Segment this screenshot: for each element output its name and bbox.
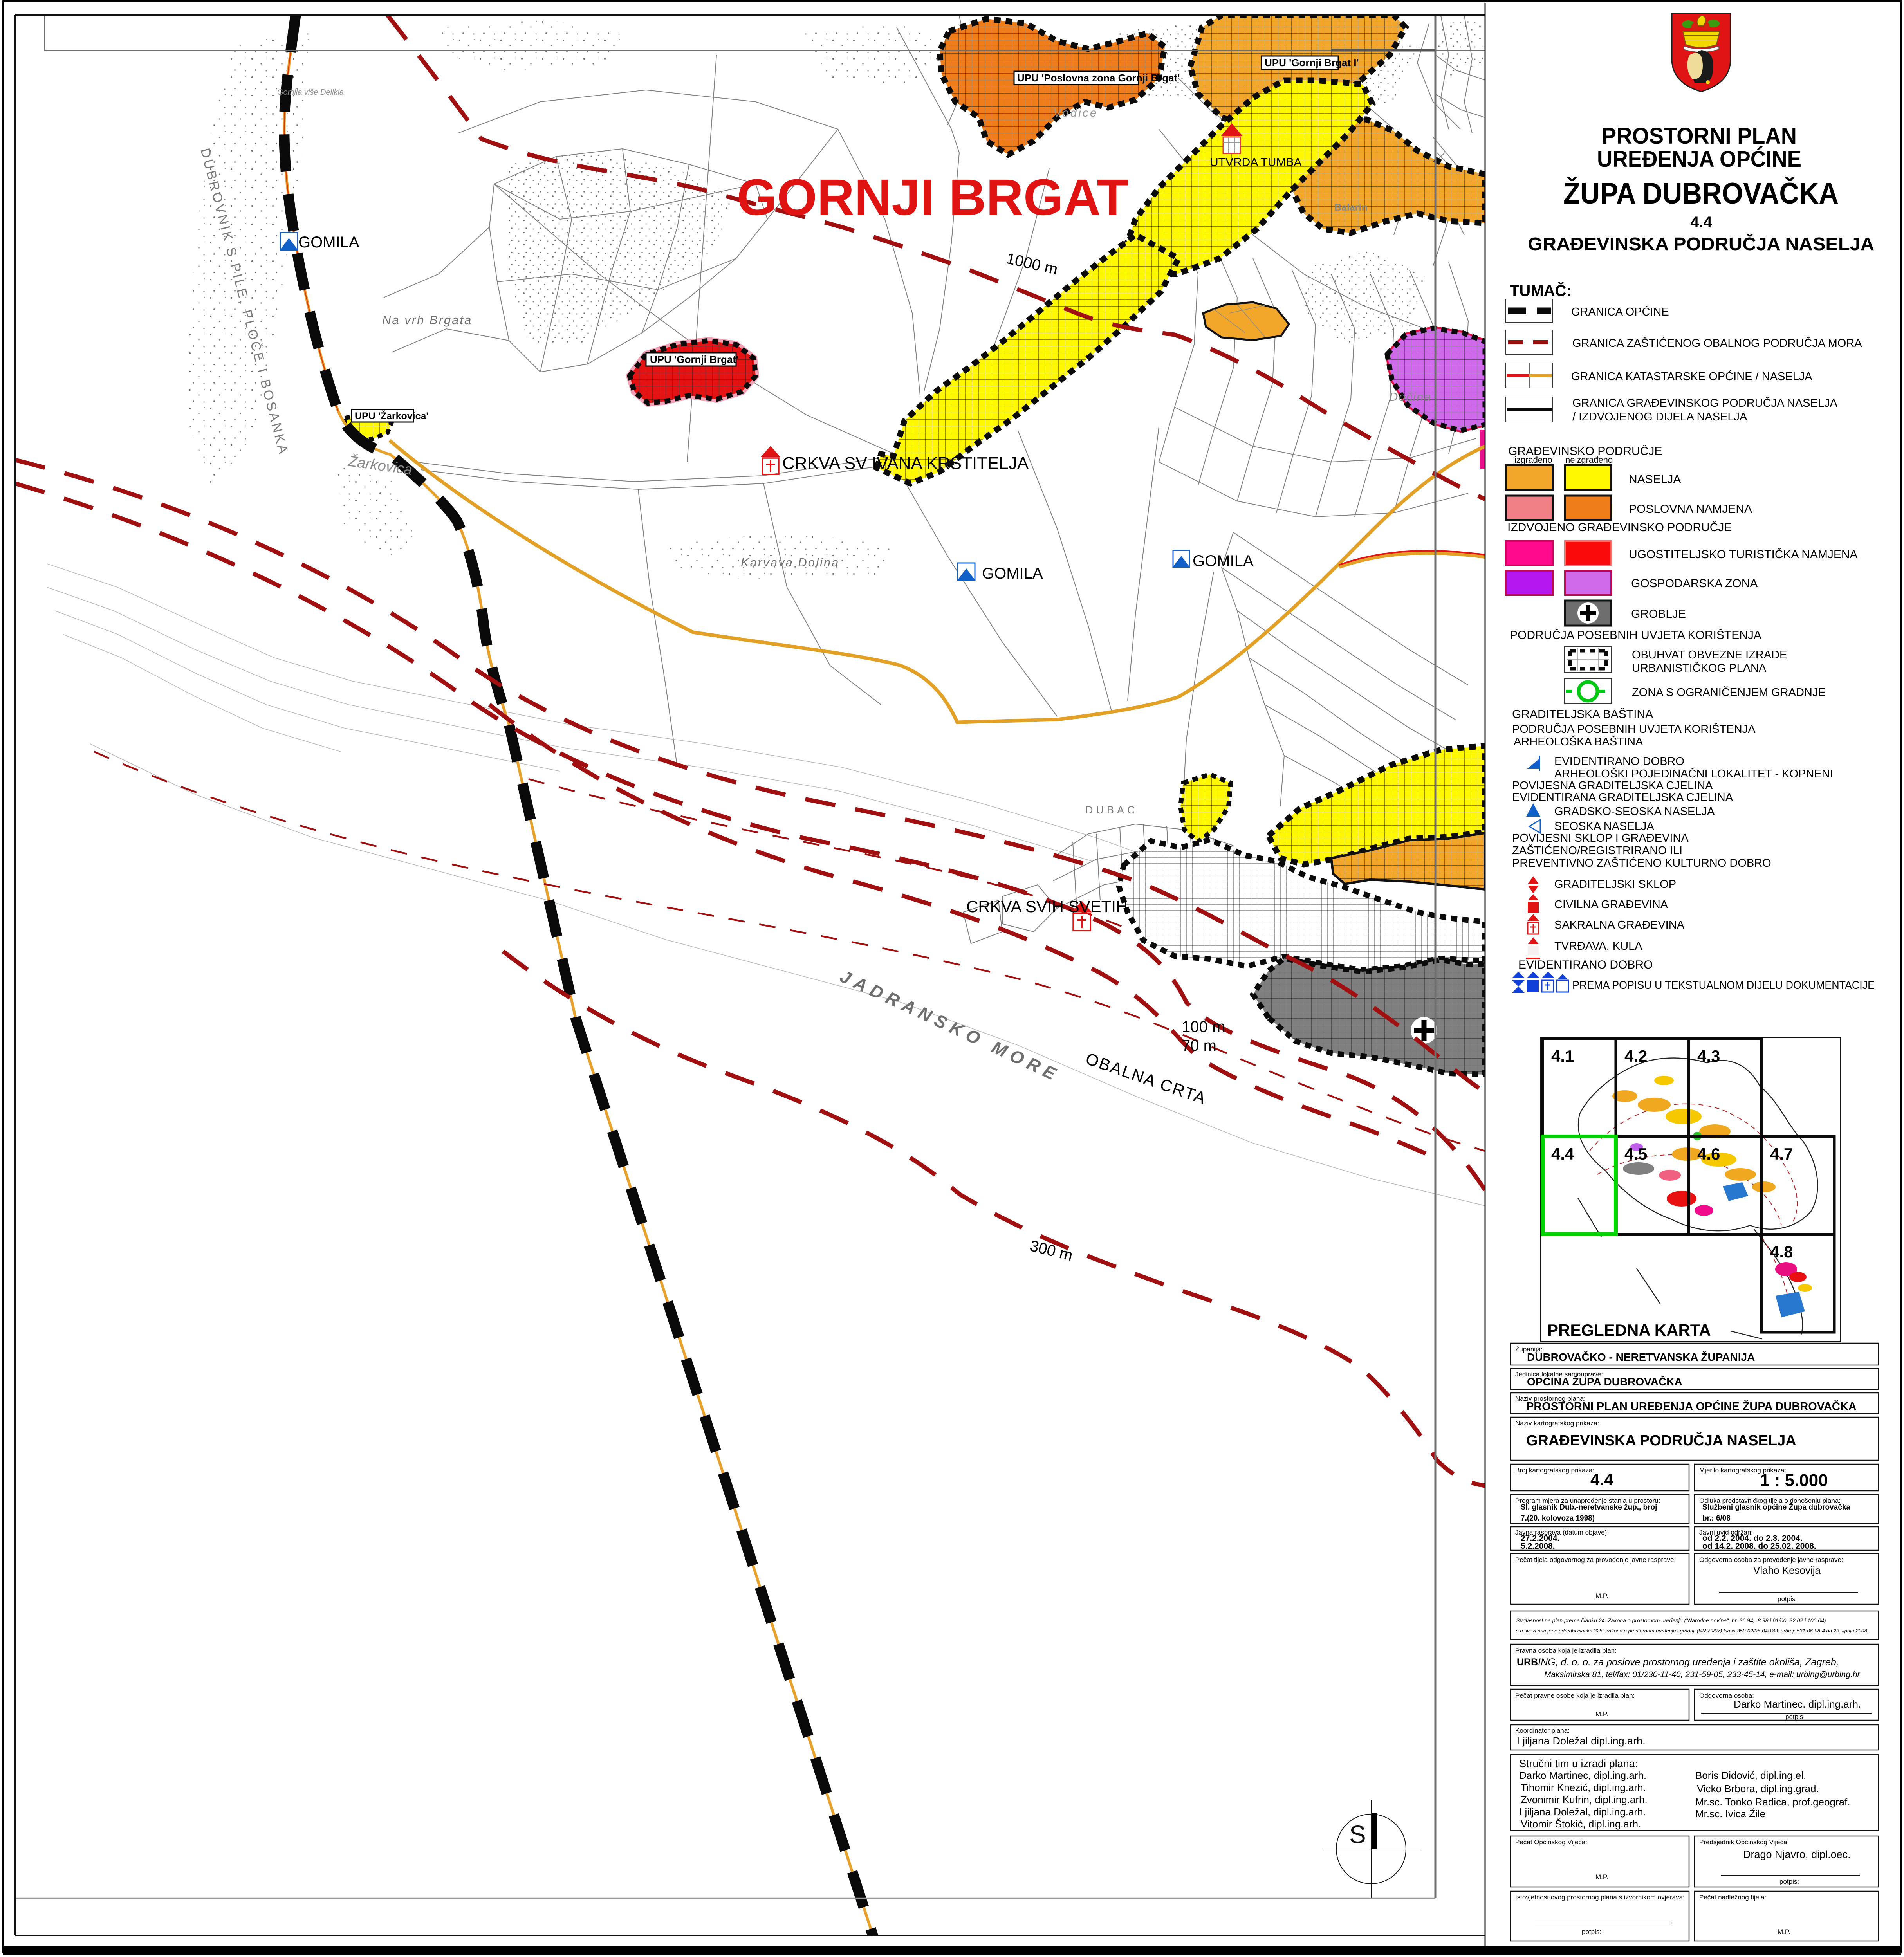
svg-text:DUBAC: DUBAC: [1085, 804, 1138, 816]
svg-text:4.3: 4.3: [1697, 1047, 1720, 1065]
svg-text:Vicko Brbora, dipl.ing.građ.: Vicko Brbora, dipl.ing.građ.: [1697, 1783, 1819, 1795]
svg-text:POVIJESNI SKLOP I GRAĐEVINA: POVIJESNI SKLOP I GRAĐEVINA: [1512, 832, 1689, 844]
svg-text:Zvonimir Kufrin, dipl.ing.arh.: Zvonimir Kufrin, dipl.ing.arh.: [1521, 1794, 1648, 1805]
svg-text:SEOSKA NASELJA: SEOSKA NASELJA: [1554, 820, 1654, 833]
svg-text:4.4: 4.4: [1690, 214, 1712, 231]
svg-text:IZDVOJENO GRAĐEVINSKO PODRUČJE: IZDVOJENO GRAĐEVINSKO PODRUČJE: [1507, 521, 1732, 534]
svg-text:Pečat pravne osobe koja je izr: Pečat pravne osobe koja je izradila plan…: [1515, 1692, 1635, 1699]
svg-text:100 m: 100 m: [1182, 1018, 1225, 1035]
svg-text:ARHEOLOŠKA BAŠTINA: ARHEOLOŠKA BAŠTINA: [1514, 735, 1643, 748]
svg-text:Pečat tijela odgovornog za pro: Pečat tijela odgovornog za provođenje ja…: [1515, 1556, 1676, 1564]
svg-text:GRAĐEVINSKA PODRUČJA NASELJA: GRAĐEVINSKA PODRUČJA NASELJA: [1526, 1431, 1796, 1449]
svg-text:br.: 6/08: br.: 6/08: [1702, 1514, 1731, 1522]
svg-text:GRADSKO-SEOSKA NASELJA: GRADSKO-SEOSKA NASELJA: [1554, 805, 1715, 818]
svg-text:GRANICA ZAŠTIĆENOG OBALNOG POD: GRANICA ZAŠTIĆENOG OBALNOG PODRUČJA MORA: [1572, 336, 1862, 350]
svg-text:CRKVA SVIH SVETIH: CRKVA SVIH SVETIH: [966, 897, 1128, 916]
svg-text:NASELJA: NASELJA: [1629, 473, 1681, 486]
svg-text:GRANICA GRAĐEVINSKOG PODRUČJA: GRANICA GRAĐEVINSKOG PODRUČJA NASELJA: [1572, 396, 1837, 409]
svg-text:Balarin: Balarin: [1334, 202, 1368, 213]
svg-text:M.P.: M.P.: [1778, 1928, 1790, 1935]
svg-text:UPU 'Poslovna zona Gornji Brga: UPU 'Poslovna zona Gornji Brgat': [1017, 72, 1180, 84]
svg-text:Naziv kartografskog prikaza:: Naziv kartografskog prikaza:: [1515, 1420, 1599, 1427]
svg-text:Tihomir Knezić, dipl.ing.arh.: Tihomir Knezić, dipl.ing.arh.: [1521, 1782, 1646, 1793]
svg-text:GRADITELJSKI SKLOP: GRADITELJSKI SKLOP: [1554, 878, 1676, 891]
svg-text:EVIDENTIRANA GRADITELJSKA CJEL: EVIDENTIRANA GRADITELJSKA CJELINA: [1512, 791, 1733, 804]
svg-text:GOMILA: GOMILA: [298, 234, 359, 251]
svg-text:POSLOVNA NAMJENA: POSLOVNA NAMJENA: [1629, 503, 1752, 516]
svg-text:UPU 'Gornji Brgat I': UPU 'Gornji Brgat I': [1265, 57, 1359, 69]
svg-text:CIVILNA GRAĐEVINA: CIVILNA GRAĐEVINA: [1554, 898, 1668, 911]
svg-text:GRAĐEVINSKA PODRUČJA NASELJA: GRAĐEVINSKA PODRUČJA NASELJA: [1528, 234, 1874, 254]
svg-text:Stručni tim u izradi plana:: Stručni tim u izradi plana:: [1519, 1758, 1638, 1769]
svg-text:5.2.2008.: 5.2.2008.: [1521, 1542, 1555, 1551]
svg-text:70 m: 70 m: [1182, 1037, 1216, 1054]
svg-text:izgrađeno: izgrađeno: [1514, 455, 1552, 465]
svg-text:/ IZDVOJENOG DIJELA NASELJA: / IZDVOJENOG DIJELA NASELJA: [1572, 411, 1747, 423]
svg-text:PROSTORNI PLAN UREĐENJA OPĆINE: PROSTORNI PLAN UREĐENJA OPĆINE ŽUPA DUBR…: [1526, 1400, 1857, 1413]
svg-text:4.5: 4.5: [1624, 1145, 1647, 1163]
svg-text:Maksimirska 81, tel/fax: 01/23: Maksimirska 81, tel/fax: 01/230-11-40, 2…: [1544, 1670, 1861, 1679]
svg-text:EVIDENTIRANO DOBRO: EVIDENTIRANO DOBRO: [1518, 958, 1653, 971]
svg-text:Drago Njavro, dipl.oec.: Drago Njavro, dipl.oec.: [1743, 1849, 1851, 1860]
svg-text:ŽUPA DUBROVAČKA: ŽUPA DUBROVAČKA: [1563, 177, 1839, 210]
svg-text:Koordinator plana:: Koordinator plana:: [1515, 1727, 1570, 1734]
svg-text:Službeni glasnik općine Župa d: Službeni glasnik općine Župa dubrovačka: [1702, 1503, 1850, 1511]
svg-text:PREMA POPISU U TEKSTUALNOM DIJ: PREMA POPISU U TEKSTUALNOM DIJELU DOKUME…: [1572, 979, 1875, 992]
svg-text:GOMILA: GOMILA: [1193, 552, 1254, 570]
svg-text:4.2: 4.2: [1624, 1047, 1647, 1065]
svg-text:4.4: 4.4: [1551, 1145, 1574, 1163]
svg-text:GOSPODARSKA ZONA: GOSPODARSKA ZONA: [1631, 577, 1758, 590]
svg-text:GRADITELJSKA BAŠTINA: GRADITELJSKA BAŠTINA: [1512, 707, 1653, 721]
svg-text:Predsjednik Općinskog Vijeća: Predsjednik Općinskog Vijeća: [1699, 1838, 1787, 1846]
svg-text:UPU 'Žarkovica': UPU 'Žarkovica': [355, 410, 428, 422]
svg-text:PREGLEDNA KARTA: PREGLEDNA KARTA: [1547, 1321, 1711, 1339]
svg-text:PODRUČJA POSEBNIH UVJETA KORIŠ: PODRUČJA POSEBNIH UVJETA KORIŠTENJA: [1512, 722, 1756, 736]
svg-text:Ljiljana Doležal dipl.ing.arh.: Ljiljana Doležal dipl.ing.arh.: [1517, 1735, 1646, 1747]
svg-text:Pečat nadležnog tijela:: Pečat nadležnog tijela:: [1699, 1894, 1766, 1901]
svg-text:Boris Didović, dipl.ing.el.: Boris Didović, dipl.ing.el.: [1695, 1769, 1806, 1781]
svg-text:Odgovorna osoba za provođenje: Odgovorna osoba za provođenje javne rasp…: [1699, 1556, 1843, 1564]
svg-text:potpis: potpis: [1785, 1713, 1803, 1721]
svg-text:Vitomir Štokić, dipl.ing.arh.: Vitomir Štokić, dipl.ing.arh.: [1521, 1818, 1641, 1830]
svg-text:Sl. glasnik Dub.-neretvanske ž: Sl. glasnik Dub.-neretvanske žup., broj: [1521, 1503, 1657, 1511]
svg-text:DUBROVAČKO - NERETVANSKA ŽUPAN: DUBROVAČKO - NERETVANSKA ŽUPANIJA: [1527, 1351, 1755, 1363]
svg-text:URBANISTIČKOG PLANA: URBANISTIČKOG PLANA: [1632, 661, 1767, 675]
svg-text:ZONA S OGRANIČENJEM GRADNJE: ZONA S OGRANIČENJEM GRADNJE: [1632, 685, 1826, 699]
svg-text:UTVRDA TUMBA: UTVRDA TUMBA: [1210, 156, 1301, 169]
svg-text:Suglasnost na plan prema člank: Suglasnost na plan prema članku 24. Zako…: [1516, 1617, 1826, 1623]
svg-text:Darko Martinec. dipl.ing.arh.: Darko Martinec. dipl.ing.arh.: [1734, 1698, 1861, 1710]
svg-text:UPU 'Gornji Brgat': UPU 'Gornji Brgat': [650, 354, 738, 365]
svg-text:GORNJI BRGAT: GORNJI BRGAT: [737, 168, 1128, 226]
svg-text:s u svezi primjene odredbi čla: s u svezi primjene odredbi članka 325. Z…: [1516, 1628, 1868, 1634]
svg-text:CRKVA SV IVANA KRSTITELJA: CRKVA SV IVANA KRSTITELJA: [782, 454, 1029, 473]
svg-text:GOMILA: GOMILA: [982, 565, 1043, 582]
svg-text:S: S: [1349, 1820, 1366, 1849]
svg-text:Mr.sc. Tonko Radica, prof.geog: Mr.sc. Tonko Radica, prof.geograf.: [1695, 1796, 1850, 1808]
svg-text:PODRUČJA POSEBNIH UVJETA KORIŠ: PODRUČJA POSEBNIH UVJETA KORIŠTENJA: [1510, 628, 1761, 642]
svg-text:Vlaho Kesovija: Vlaho Kesovija: [1753, 1564, 1821, 1576]
svg-text:Darko Martinec, dipl.ing.arh.: Darko Martinec, dipl.ing.arh.: [1519, 1769, 1646, 1781]
svg-text:Karvava Dolina: Karvava Dolina: [741, 556, 839, 569]
svg-text:ARHEOLOŠKI POJEDINAČNI LOKALIT: ARHEOLOŠKI POJEDINAČNI LOKALITET - KOPNE…: [1554, 767, 1833, 780]
svg-text:TUMAČ:: TUMAČ:: [1510, 281, 1572, 299]
svg-text:Vodice: Vodice: [1053, 106, 1098, 119]
svg-text:1 : 5.000: 1 : 5.000: [1760, 1471, 1828, 1490]
svg-text:PREVENTIVNO ZAŠTIĆENO KULTURNO: PREVENTIVNO ZAŠTIĆENO KULTURNO DOBRO: [1512, 856, 1771, 869]
svg-text:UREĐENJA OPĆINE: UREĐENJA OPĆINE: [1597, 146, 1801, 172]
svg-text:Pravna osoba koja je izradila: Pravna osoba koja je izradila plan:: [1515, 1647, 1617, 1654]
svg-text:OPĆINA ŽUPA DUBROVAČKA: OPĆINA ŽUPA DUBROVAČKA: [1527, 1375, 1682, 1388]
svg-text:Pečat Općinskog Vijeća:: Pečat Općinskog Vijeća:: [1515, 1838, 1587, 1846]
svg-text:M.P.: M.P.: [1595, 1710, 1608, 1718]
svg-text:4.8: 4.8: [1770, 1243, 1793, 1261]
svg-text:ZAŠTIĆENO/REGISTRIRANO ILI: ZAŠTIĆENO/REGISTRIRANO ILI: [1512, 844, 1682, 857]
svg-text:Ljiljana Doležal, dipl.ing.arh: Ljiljana Doležal, dipl.ing.arh.: [1519, 1806, 1646, 1818]
svg-text:URBING, d. o. o. za poslove pr: URBING, d. o. o. za poslove prostornog u…: [1517, 1657, 1839, 1668]
svg-text:4.4: 4.4: [1590, 1470, 1613, 1489]
svg-text:PROSTORNI PLAN: PROSTORNI PLAN: [1602, 123, 1797, 149]
svg-text:SAKRALNA GRAĐEVINA: SAKRALNA GRAĐEVINA: [1554, 919, 1685, 931]
svg-text:7.(20. kolovoza 1998): 7.(20. kolovoza 1998): [1521, 1514, 1595, 1522]
svg-text:TVRĐAVA, KULA: TVRĐAVA, KULA: [1554, 940, 1642, 952]
svg-text:M.P.: M.P.: [1595, 1873, 1608, 1881]
svg-text:neizgrađeno: neizgrađeno: [1565, 455, 1613, 465]
svg-text:M.P.: M.P.: [1595, 1592, 1608, 1600]
svg-text:GRANICA OPĆINE: GRANICA OPĆINE: [1571, 305, 1669, 318]
svg-text:POVIJESNA GRADITELJSKA CJELINA: POVIJESNA GRADITELJSKA CJELINA: [1512, 779, 1713, 792]
svg-text:Mr.sc. Ivica Žile: Mr.sc. Ivica Žile: [1695, 1808, 1765, 1820]
svg-text:Broj kartografskog prikaza:: Broj kartografskog prikaza:: [1515, 1466, 1594, 1474]
svg-text:4.1: 4.1: [1551, 1047, 1574, 1065]
svg-text:GROBLJE: GROBLJE: [1631, 608, 1686, 620]
svg-text:Na vrh Brgata: Na vrh Brgata: [382, 313, 472, 327]
svg-text:GRANICA KATASTARSKE OPĆINE / N: GRANICA KATASTARSKE OPĆINE / NASELJA: [1571, 370, 1812, 383]
svg-text:Istovjetnost ovog prostornog p: Istovjetnost ovog prostornog plana s izv…: [1515, 1894, 1685, 1901]
svg-text:potpis:: potpis:: [1779, 1878, 1799, 1885]
svg-text:4.6: 4.6: [1697, 1145, 1720, 1163]
svg-text:Dočina: Dočina: [1389, 390, 1432, 404]
svg-text:UGOSTITELJSKO TURISTIČKA NAMJE: UGOSTITELJSKO TURISTIČKA NAMJENA: [1629, 548, 1858, 561]
svg-text:4.7: 4.7: [1770, 1145, 1793, 1163]
svg-text:Gomila više Delikia: Gomila više Delikia: [277, 88, 344, 97]
svg-text:EVIDENTIRANO DOBRO: EVIDENTIRANO DOBRO: [1554, 755, 1684, 768]
svg-text:potpis: potpis: [1778, 1595, 1795, 1603]
svg-text:OBUHVAT OBVEZNE IZRADE: OBUHVAT OBVEZNE IZRADE: [1632, 649, 1787, 661]
svg-text:potpis:: potpis:: [1582, 1928, 1601, 1935]
svg-text:od 14.2. 2008. do 25.02. 2008.: od 14.2. 2008. do 25.02. 2008.: [1702, 1542, 1816, 1551]
